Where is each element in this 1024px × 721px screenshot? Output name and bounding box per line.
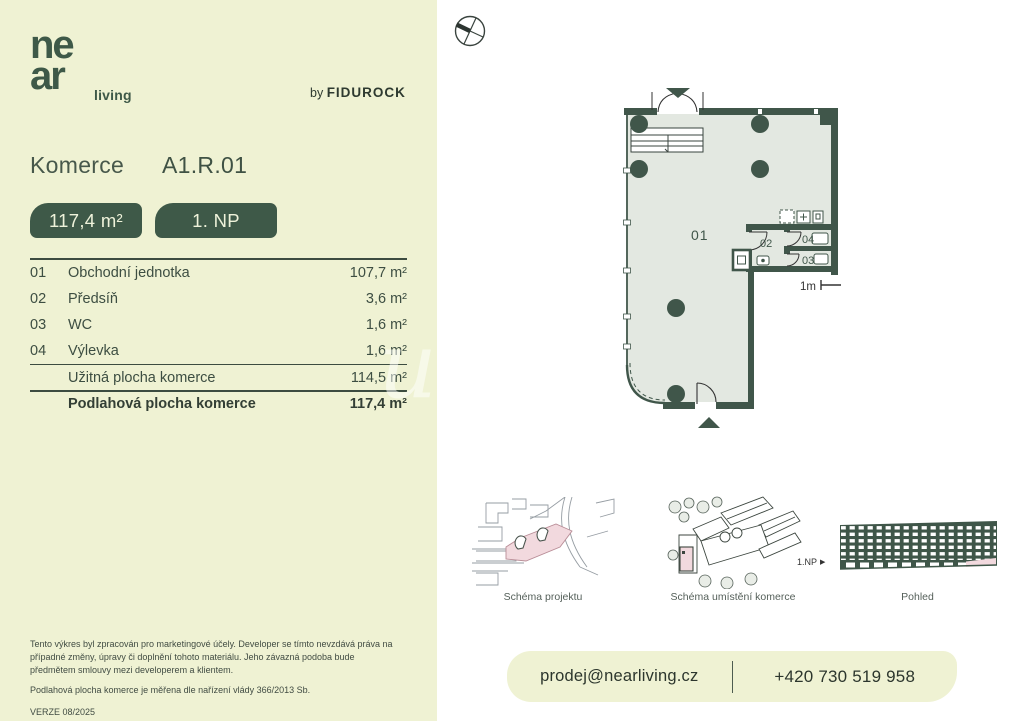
contact-email[interactable]: prodej@nearliving.cz — [507, 667, 732, 686]
room-name: Obchodní jednotka — [68, 265, 350, 281]
service-box — [733, 250, 750, 270]
disclaimer: Tento výkres byl zpracován pro marketing… — [30, 638, 394, 719]
elevation-view — [830, 505, 1005, 580]
location-scheme-map — [663, 495, 803, 589]
subtotal-value: 114,5 m² — [351, 370, 407, 386]
elevation-floor-marker: 1.NP ▶ — [797, 557, 825, 567]
elevation-caption: Pohled — [830, 591, 1005, 603]
north-compass-icon — [450, 10, 490, 54]
room-number: 04 — [30, 343, 68, 359]
floor-marker-label: 1.NP — [797, 557, 817, 567]
logo-text: ne ar — [30, 30, 73, 92]
disclaimer-paragraph-1: Tento výkres byl zpracován pro marketing… — [30, 638, 394, 677]
arrow-right-icon: ▶ — [820, 559, 825, 566]
info-panel: ne ar living by FIDUROCK Komerce A1.R.01… — [0, 0, 437, 721]
room-03-label: 03 — [802, 255, 814, 267]
area-badge: 117,4 m² — [30, 203, 142, 238]
entrance-marker-icon — [666, 88, 690, 98]
floor-badge: 1. NP — [155, 203, 277, 238]
floor-plan: 1m 01 02 04 03 — [595, 60, 860, 440]
subtotal-label: Užitná plocha komerce — [68, 370, 351, 386]
project-scheme-map — [468, 497, 618, 589]
total-row: Podlahová plocha komerce 117,4 m² — [30, 390, 407, 416]
room-table: 01 Obchodní jednotka 107,7 m² 02 Předsíň… — [30, 258, 407, 416]
table-row: 02 Předsíň 3,6 m² — [30, 286, 407, 312]
room-area: 107,7 m² — [350, 265, 407, 281]
kitchenette-fixtures — [780, 210, 823, 223]
room-name: Výlevka — [68, 343, 366, 359]
scale-bar: 1m — [800, 280, 841, 293]
fidurock-wordmark: FIDUROCK — [327, 85, 406, 100]
table-row: 03 WC 1,6 m² — [30, 312, 407, 338]
room-number: 02 — [30, 291, 68, 307]
room-02-label: 02 — [760, 238, 772, 250]
room-area: 3,6 m² — [366, 291, 407, 307]
contact-phone[interactable]: +420 730 519 958 — [733, 667, 958, 687]
room-area: 1,6 m² — [366, 317, 407, 333]
version-label: VERZE 08/2025 — [30, 706, 394, 719]
total-value: 117,4 m² — [350, 396, 407, 412]
room-01-label: 01 — [691, 227, 709, 243]
room-name: Předsíň — [68, 291, 366, 307]
project-scheme-caption: Schéma projektu — [468, 591, 618, 603]
entrance-double-door — [652, 88, 703, 112]
scale-label: 1m — [800, 281, 816, 293]
total-label: Podlahová plocha komerce — [68, 396, 350, 412]
table-row: 04 Výlevka 1,6 m² — [30, 338, 407, 364]
room-name: WC — [68, 317, 366, 333]
exit-marker-icon — [698, 417, 720, 428]
room-number: 03 — [30, 317, 68, 333]
room-number: 01 — [30, 265, 68, 281]
byline-prefix: by — [310, 86, 323, 100]
subtotal-row: Užitná plocha komerce 114,5 m² — [30, 364, 407, 390]
location-scheme-caption: Schéma umístění komerce — [655, 591, 811, 603]
unit-id: A1.R.01 — [162, 152, 247, 179]
location-highlight-unit — [680, 547, 693, 571]
table-row: 01 Obchodní jednotka 107,7 m² — [30, 260, 407, 286]
contact-bar: prodej@nearliving.cz +420 730 519 958 — [507, 651, 957, 702]
logo-living-label: living — [94, 87, 132, 103]
disclaimer-paragraph-2: Podlahová plocha komerce je měřena dle n… — [30, 684, 394, 697]
unit-category: Komerce — [30, 152, 124, 179]
byline: by FIDUROCK — [310, 85, 406, 100]
room-area: 1,6 m² — [366, 343, 407, 359]
room-04-label: 04 — [802, 234, 814, 246]
near-living-logo: ne ar living — [30, 30, 73, 92]
